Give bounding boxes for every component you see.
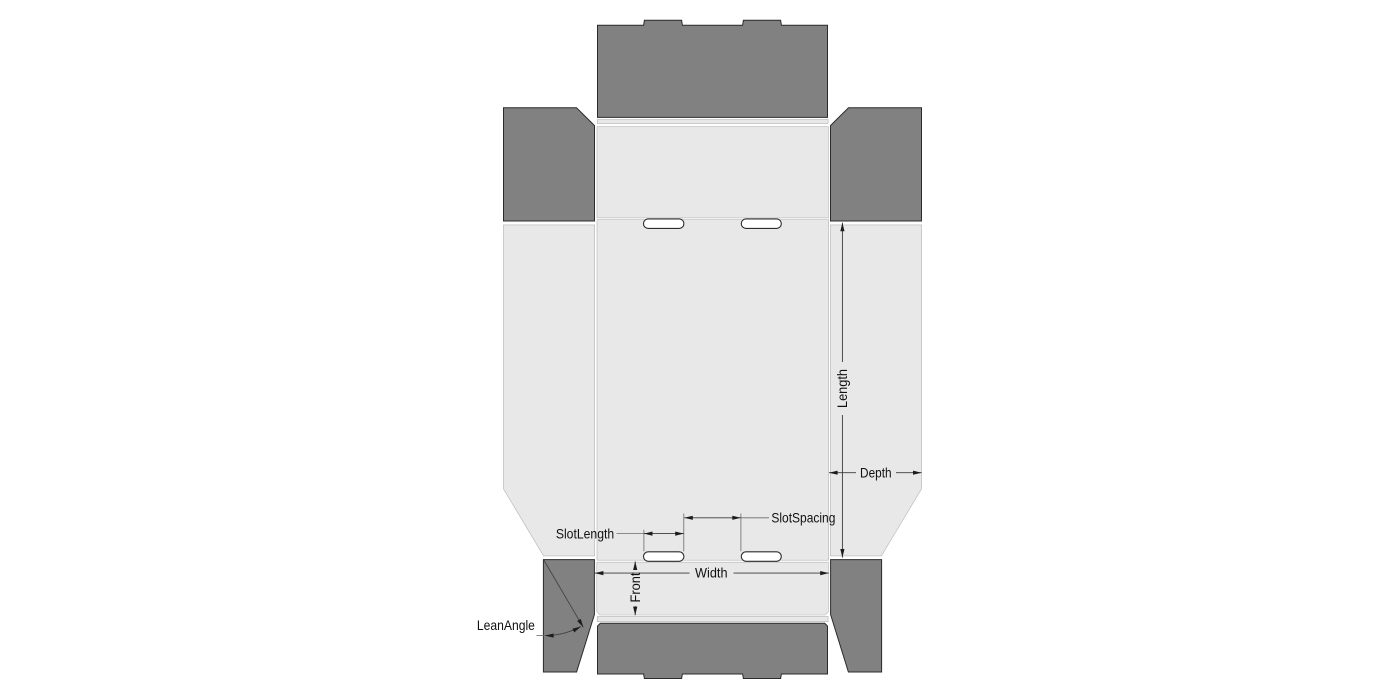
svg-text:SlotLength: SlotLength bbox=[556, 525, 614, 541]
svg-text:SlotSpacing: SlotSpacing bbox=[771, 510, 835, 526]
svg-text:Depth: Depth bbox=[860, 464, 892, 480]
svg-text:LeanAngle: LeanAngle bbox=[477, 617, 535, 633]
svg-text:Width: Width bbox=[695, 565, 728, 581]
svg-text:Length: Length bbox=[834, 369, 850, 408]
svg-text:Front: Front bbox=[627, 572, 643, 602]
